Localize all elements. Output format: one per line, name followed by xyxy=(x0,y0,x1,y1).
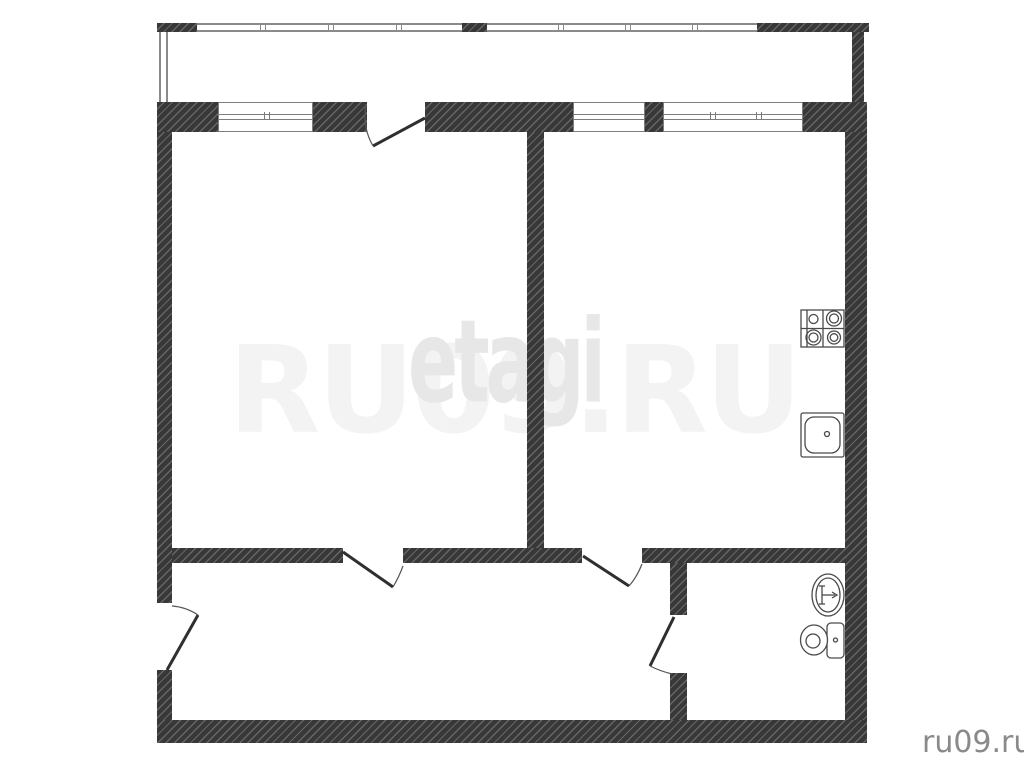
kitchen-sink-icon xyxy=(801,413,844,457)
toilet-icon xyxy=(801,623,845,658)
room-left-door xyxy=(343,552,403,587)
watermark-corner-site: ru09.ru xyxy=(922,725,1024,760)
stove-icon xyxy=(801,310,844,347)
plan-overlay xyxy=(0,0,1024,768)
floor-plan: RU09.RU etagi xyxy=(0,0,1024,768)
wash-basin-icon xyxy=(812,574,844,616)
entrance-door xyxy=(167,606,198,670)
bathroom-door xyxy=(650,617,674,674)
kitchen-door xyxy=(583,556,642,586)
balcony-door xyxy=(365,104,425,146)
